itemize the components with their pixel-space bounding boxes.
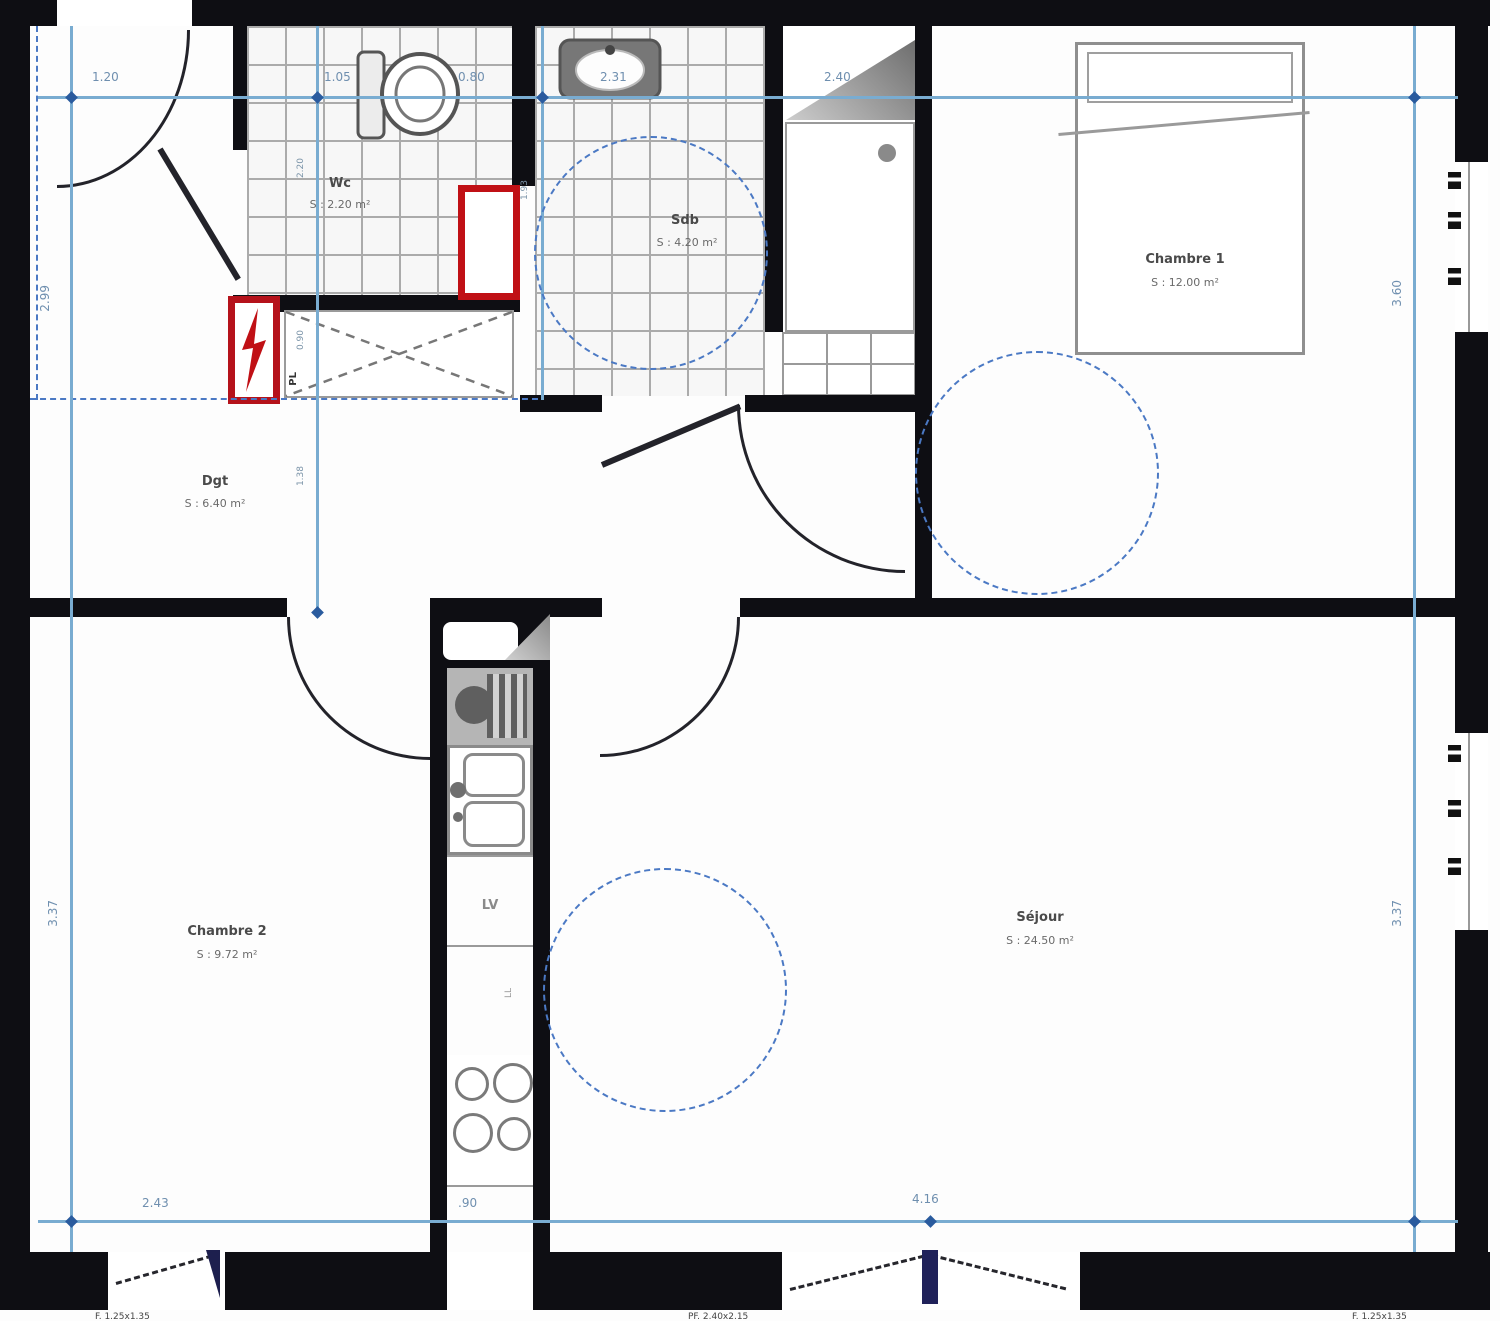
- dim-label: 3.37: [46, 900, 60, 927]
- window-opening: [1455, 733, 1488, 930]
- dimension-line: [38, 1220, 1458, 1223]
- counter-divider: [447, 855, 533, 857]
- room-label-sejour: Séjour: [995, 910, 1085, 925]
- room-label-wc: Wc: [300, 176, 380, 191]
- wall-segment: [233, 26, 247, 150]
- wall-segment: [765, 26, 783, 332]
- room-area-chambre2: S : 9.72 m²: [177, 948, 277, 961]
- entry-door-opening: [57, 0, 192, 26]
- dim-label: 0.90: [296, 330, 306, 350]
- window-frame-line: [1468, 733, 1470, 930]
- window-latch-icon: [1448, 800, 1461, 817]
- clearance-circle: [915, 351, 1159, 595]
- room-area-chambre1: S : 12.00 m²: [1126, 276, 1244, 289]
- window-latch-icon: [1448, 745, 1461, 762]
- hob-burner-icon: [455, 1067, 489, 1101]
- dimension-marker: [924, 1215, 937, 1228]
- washer-label: LL: [504, 988, 514, 998]
- dimension-dashed-line: [30, 398, 538, 400]
- dim-label: 1.20: [92, 70, 119, 84]
- room-area-sdb: S : 4.20 m²: [642, 236, 732, 249]
- window-spec-clip: PF. 2.40x2.15: [688, 1312, 828, 1321]
- room-area-dgt: S : 6.40 m²: [172, 497, 258, 510]
- wall-segment: [430, 612, 447, 1310]
- dim-label: 2.20: [296, 158, 306, 178]
- hob-burner-icon: [493, 1063, 533, 1103]
- kitchen-fridge-coil: [487, 674, 527, 738]
- window-latch-icon: [1448, 172, 1461, 189]
- room-label-sdb: Sdb: [650, 213, 720, 228]
- window-center-post: [922, 1250, 938, 1304]
- clearance-circle: [534, 136, 768, 370]
- room-area-wc: S : 2.20 m²: [292, 198, 388, 211]
- kitchen-faucet-icon: [453, 812, 463, 822]
- dim-label: 1.38: [296, 466, 306, 486]
- dim-label: 0.80: [458, 70, 485, 84]
- window-opening: [447, 1252, 533, 1310]
- window-latch-icon: [1448, 212, 1461, 229]
- clearance-circle: [543, 868, 787, 1112]
- kitchen-sink-bowl: [463, 753, 525, 797]
- dimension-marker: [1408, 1215, 1421, 1228]
- room-area-sejour: S : 24.50 m²: [988, 934, 1092, 947]
- window-spec: F. 1.25x1.35: [95, 1312, 150, 1321]
- dim-label: .90: [458, 1196, 477, 1210]
- kitchen-fridge-motor: [455, 686, 493, 724]
- dim-label: 3.60: [1390, 280, 1404, 307]
- window-spec: F. 1.25x1.35: [1352, 1312, 1407, 1321]
- window-spec-clip: F. 1.25x1.35: [95, 1312, 225, 1321]
- living-door-arc: [600, 617, 740, 757]
- wall-segment: [740, 598, 1455, 617]
- window-latch-icon: [1448, 858, 1461, 875]
- window-latch-icon: [1448, 268, 1461, 285]
- window-spec-clip: F. 1.25x1.35: [1352, 1312, 1482, 1321]
- wall-segment: [30, 598, 287, 617]
- wc-door-leaf: [157, 147, 240, 280]
- bathroom-door-leaf: [601, 404, 741, 468]
- kitchen-sink-bowl: [463, 801, 525, 847]
- dim-label: 2.31: [600, 70, 627, 84]
- dim-label: 4.16: [912, 1192, 939, 1206]
- window-spec: PF. 2.40x2.15: [688, 1312, 748, 1321]
- kitchen-faucet-icon: [450, 782, 466, 798]
- room-label-chambre2: Chambre 2: [172, 924, 282, 939]
- dimension-line: [1413, 26, 1416, 1252]
- dimension-marker: [1408, 91, 1421, 104]
- bedroom2-door-arc: [287, 617, 430, 760]
- shower-drain-icon: [878, 144, 896, 162]
- hob-burner-icon: [497, 1117, 531, 1151]
- dimension-marker: [65, 1215, 78, 1228]
- room-label-chambre1: Chambre 1: [1130, 252, 1240, 267]
- counter-divider: [447, 945, 533, 947]
- hob-burner-icon: [453, 1113, 493, 1153]
- closet-label: PL: [288, 372, 299, 386]
- dimension-dashed-line: [36, 26, 38, 400]
- bath-counter-grid: [782, 332, 915, 395]
- counter-divider: [447, 1185, 533, 1187]
- dim-label: 2.40: [824, 70, 851, 84]
- room-label-dgt: Dgt: [185, 474, 245, 489]
- dishwasher-label: LV: [458, 898, 522, 913]
- dim-label: 2.99: [38, 285, 52, 312]
- dim-label: 1.05: [324, 70, 351, 84]
- wall-segment: [512, 26, 535, 186]
- dimension-line: [70, 26, 73, 1252]
- dim-label: 3.37: [1390, 900, 1404, 927]
- dim-label: 1.93: [520, 180, 530, 200]
- dimension-line: [316, 26, 319, 614]
- dimension-line: [38, 96, 1458, 99]
- floor-plan: PL LV LL Wc S : 2.20 m² Sdb S : 4.: [0, 0, 1500, 1321]
- kitchen-duct-inset: [443, 622, 518, 660]
- bathroom-sink-icon: [558, 38, 662, 100]
- red-door-frame: [458, 185, 520, 300]
- window-frame-line: [1468, 162, 1470, 332]
- bedroom1-door-arc: [737, 405, 905, 573]
- wall-segment: [0, 0, 30, 1310]
- dim-label: 2.43: [142, 1196, 169, 1210]
- lightning-bolt-icon: [238, 306, 270, 394]
- wall-segment: [0, 0, 1490, 26]
